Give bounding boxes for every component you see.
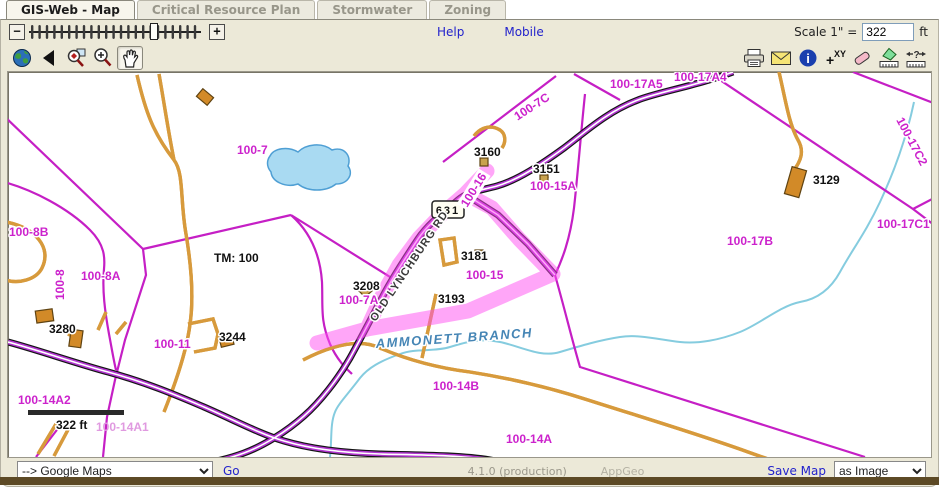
buildings xyxy=(35,89,806,348)
tab-stormwater[interactable]: Stormwater xyxy=(317,0,427,19)
map-label-100-15: 100-15 xyxy=(466,268,504,282)
map-label-100-14a2: 100-14A2 xyxy=(18,393,71,407)
go-link[interactable]: Go xyxy=(223,464,240,478)
map-label-100-17a5: 100-17A5 xyxy=(610,77,663,91)
map-viewport: 631 322 ft 100-7100-7C100-17A5100-17A410… xyxy=(7,71,932,458)
map-label-100-14a1: 100-14A1 xyxy=(96,420,149,434)
pond xyxy=(268,145,351,190)
tab-bar: GIS-Web - MapCritical Resource PlanStorm… xyxy=(0,0,939,19)
info-icon[interactable]: i xyxy=(795,46,821,70)
toolbar: i + XY ? xyxy=(1,44,938,71)
brand-text: AppGeo xyxy=(601,465,645,478)
tab-zoning[interactable]: Zoning xyxy=(429,0,506,19)
measure-area-icon[interactable] xyxy=(876,46,902,70)
zoom-in-icon[interactable] xyxy=(90,46,116,70)
scale-label: Scale 1" = xyxy=(794,25,857,39)
email-icon[interactable] xyxy=(768,46,794,70)
scale-control: Scale 1" = ft xyxy=(794,23,928,41)
tab-critical-resource-plan[interactable]: Critical Resource Plan xyxy=(137,0,315,19)
map-label-100-11: 100-11 xyxy=(154,337,191,351)
map-canvas[interactable]: 631 322 ft 100-7100-7C100-17A5100-17A410… xyxy=(8,72,931,457)
zoom-extent-icon[interactable] xyxy=(63,46,89,70)
map-label-3160: 3160 xyxy=(474,145,501,159)
map-label-3244: 3244 xyxy=(219,330,246,344)
scale-input[interactable] xyxy=(862,23,914,41)
svg-text:i: i xyxy=(806,51,810,66)
zoom-slider-track xyxy=(29,23,205,41)
svg-text:XY: XY xyxy=(834,49,846,59)
stream-ammonett-branch xyxy=(330,102,914,457)
zoom-in-button[interactable]: + xyxy=(209,24,225,40)
mobile-link[interactable]: Mobile xyxy=(504,25,543,39)
map-label-100-14b: 100-14B xyxy=(433,379,479,393)
eraser-icon[interactable] xyxy=(849,46,875,70)
zoom-slider-handle[interactable] xyxy=(150,23,158,40)
map-label-3129: 3129 xyxy=(813,173,840,187)
map-label-100-8a: 100-8A xyxy=(81,269,121,283)
zoom-slider[interactable] xyxy=(29,23,205,41)
map-label-100-7: 100-7 xyxy=(237,143,268,157)
gis-web-app: GIS-Web - MapCritical Resource PlanStorm… xyxy=(0,0,939,485)
map-label-3193: 3193 xyxy=(438,292,465,306)
scale-unit: ft xyxy=(919,25,928,39)
map-label-100-17a4: 100-17A4 xyxy=(674,72,727,84)
map-label-100-8b: 100-8B xyxy=(9,225,49,239)
selection-highlight[interactable] xyxy=(317,171,553,343)
map-label-old-lynchburg-rd: OLD LYNCHBURG RD xyxy=(368,209,451,324)
tab-gis-web-map[interactable]: GIS-Web - Map xyxy=(6,0,135,19)
map-label-100-17c2: 100-17C2 xyxy=(893,115,930,168)
back-arrow-icon[interactable] xyxy=(36,46,62,70)
save-map-link[interactable]: Save Map xyxy=(767,464,826,478)
chrome-panel: − + Help Mobile Scale 1" = ft xyxy=(0,19,939,487)
pan-hand-icon[interactable] xyxy=(117,46,143,70)
svg-text:322 ft: 322 ft xyxy=(56,418,87,432)
map-label-100-14a: 100-14A xyxy=(506,432,552,446)
map-label-tm-100: TM: 100 xyxy=(214,251,259,265)
print-icon[interactable] xyxy=(741,46,767,70)
measure-distance-icon[interactable]: ? xyxy=(903,46,929,70)
map-label-3208: 3208 xyxy=(353,279,380,293)
svg-text:+: + xyxy=(826,52,834,68)
xy-coordinates-icon[interactable]: + XY xyxy=(822,46,848,70)
svg-text:?: ? xyxy=(914,50,920,61)
version-text: 4.1.0 (production) xyxy=(468,465,567,478)
bottom-brown-bar xyxy=(0,477,939,485)
map-label-3280: 3280 xyxy=(49,322,76,336)
controls-row: − + Help Mobile Scale 1" = ft xyxy=(1,20,938,44)
map-label-3151: 3151 xyxy=(533,162,560,176)
toolbar-right: i + XY ? xyxy=(741,46,930,70)
zoom-out-button[interactable]: − xyxy=(9,24,25,40)
map-label-100-17c1: 100-17C1 xyxy=(877,217,930,231)
map-label-100-8: 100-8 xyxy=(53,269,67,300)
map-label-100-15a: 100-15A xyxy=(530,179,576,193)
map-label-100-7a: 100-7A xyxy=(339,293,379,307)
map-label-100-17b: 100-17B xyxy=(727,234,773,248)
map-label-3181: 3181 xyxy=(461,249,488,263)
globe-icon[interactable] xyxy=(9,46,35,70)
help-link[interactable]: Help xyxy=(437,25,464,39)
